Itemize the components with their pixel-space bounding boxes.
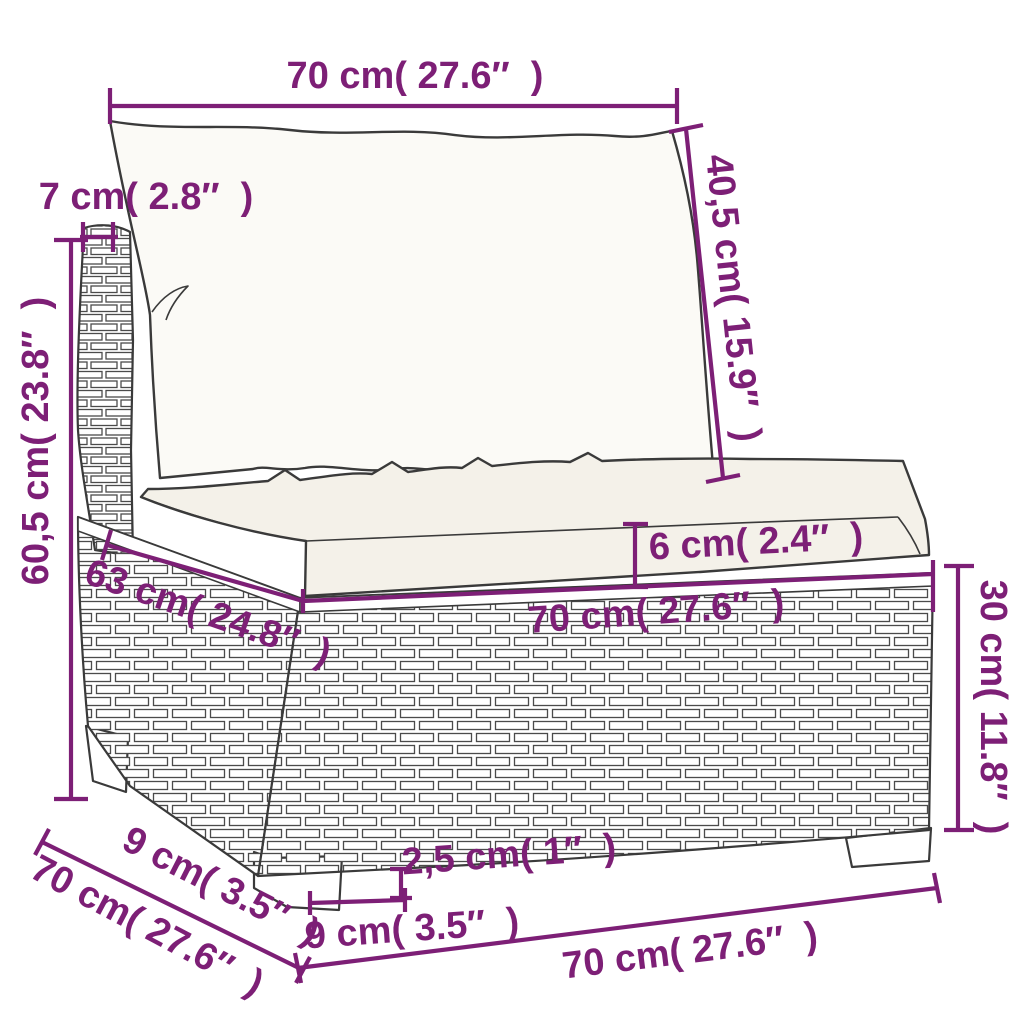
back-post	[77, 225, 133, 556]
dimension-diagram: 70 cm( 27.6″ ) 40,5 cm( 15.9″ ) 7 cm( 2.…	[0, 0, 1024, 1024]
dim-label-total-height: 60,5 cm( 23.8″ )	[17, 297, 55, 586]
dim-label-base-height: 30 cm( 11.8″ )	[974, 580, 1012, 835]
back-cushion	[110, 121, 714, 478]
dim-label-back-post-width: 7 cm( 2.8″ )	[39, 178, 254, 216]
dim-label-back-cushion-width: 70 cm( 27.6″ )	[287, 57, 544, 95]
